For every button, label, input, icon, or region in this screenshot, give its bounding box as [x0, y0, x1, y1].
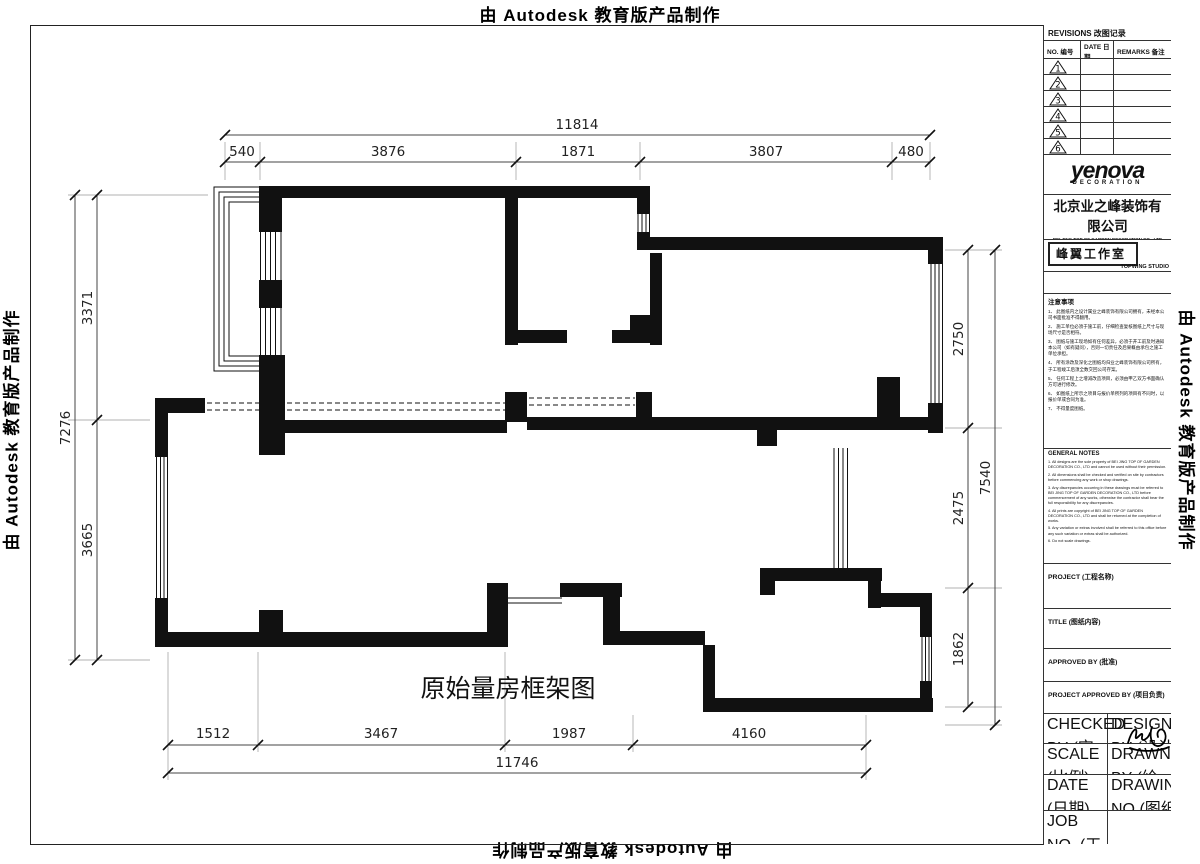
studio-name-en: TOPWING STUDIO [1121, 264, 1169, 270]
revision-row: 2 [1044, 75, 1171, 91]
revision-row: 1 [1044, 59, 1171, 75]
notes-chinese: 注意事项 1、 此图纸内之设计属业之峰装饰有限公司拥有，未经本公司书面批准不得翻… [1044, 294, 1171, 449]
company-info: 北京业之峰装饰有限公司 BEI JING TOP OF GARDEN DECOR… [1044, 195, 1171, 240]
dim-label: 7540 [978, 461, 994, 495]
field-drawing-no: DRAWING NO.(图纸编号) [1108, 775, 1171, 811]
studio-info: 峰翼工作室 TOPWING STUDIO [1044, 240, 1171, 272]
field-project-approved-by: PROJECT APPROVED BY (项目负责) [1044, 682, 1171, 714]
field-title: TITLE (图纸内容) [1044, 609, 1171, 649]
field-date-drawingno: DATE (日期) DRAWING NO.(图纸编号) [1044, 775, 1171, 811]
note-item: 6、 如图纸上所示之项目与报价单所列的项目有不同时，以报价单或合同为准。 [1048, 391, 1167, 403]
revision-row: 4 [1044, 107, 1171, 123]
company-name: 北京业之峰装饰有限公司 [1048, 197, 1167, 237]
dim-label: 3467 [364, 726, 398, 742]
dim-label: 2750 [951, 322, 967, 356]
dim-label: 11814 [556, 117, 599, 133]
revisions-col-no: NO. 编号 [1044, 41, 1081, 59]
logo-subtitle: DECORATION [1048, 180, 1167, 186]
note-item: 2. All dimensions shall be checked and v… [1048, 473, 1167, 483]
dim-label: 1987 [552, 726, 586, 742]
note-item: 6. Do not scale drawings. [1048, 539, 1167, 544]
revision-row: 6 [1044, 139, 1171, 155]
title-block-spacer [1044, 272, 1171, 294]
revisions-header: REVISIONS 改图记录 [1044, 25, 1171, 41]
svg-text:1: 1 [1055, 64, 1060, 74]
dim-label: 3876 [371, 144, 405, 160]
revision-row: 5 [1044, 123, 1171, 139]
designer-signature [1124, 719, 1174, 757]
dim-label: 3371 [80, 291, 96, 325]
revision-triangle-icon: 1 [1049, 60, 1067, 74]
title-block: REVISIONS 改图记录 NO. 编号 DATE 日期 REMARKS 备注… [1043, 25, 1171, 845]
dim-label: 11746 [496, 755, 539, 771]
svg-text:3: 3 [1055, 96, 1060, 106]
field-jobno: JOB NO. (工程编号) [1044, 811, 1171, 844]
svg-text:2: 2 [1055, 80, 1060, 90]
note-item: 5、 任何工程上之增减改造项目，必须由甲乙双方书面确认方可进行修改。 [1048, 376, 1167, 388]
revisions-col-date: DATE 日期 [1081, 41, 1114, 59]
revision-row: 3 [1044, 91, 1171, 107]
svg-text:5: 5 [1055, 128, 1060, 138]
dim-label: 1512 [196, 726, 230, 742]
field-scale: SCALE (比例) [1044, 744, 1108, 775]
general-notes: GENERAL NOTES 1. All designs are the sol… [1044, 449, 1171, 564]
note-item: 4. All prints are copyright of BEI JING … [1048, 509, 1167, 524]
revision-triangle-icon: 5 [1049, 124, 1067, 138]
dim-label: 1871 [561, 144, 595, 160]
floor-plan: 11814 540 3876 1871 3807 480 7276 3371 3… [0, 0, 1200, 864]
dim-label: 7276 [58, 411, 74, 445]
field-checked-by: CHECKED BY (审核) [1044, 714, 1108, 744]
dim-label: 2475 [951, 491, 967, 525]
studio-name: 峰翼工作室 [1048, 242, 1138, 266]
note-item: 1、 此图纸内之设计属业之峰装饰有限公司拥有，未经本公司书面批准不得翻用。 [1048, 309, 1167, 321]
svg-text:6: 6 [1055, 144, 1060, 154]
notes-en-heading: GENERAL NOTES [1048, 451, 1167, 457]
note-item: 1. All designs are the sole property of … [1048, 460, 1167, 470]
svg-text:4: 4 [1055, 112, 1060, 122]
note-item: 4、 所有涂改及深化之图纸均归业之峰装饰有限公司所有，于工程竣工后须全数交回公司… [1048, 360, 1167, 372]
dim-label: 3665 [80, 523, 96, 557]
note-item: 7、 不得量度图纸。 [1048, 406, 1167, 412]
field-date: DATE (日期) [1044, 775, 1108, 811]
revision-triangle-icon: 3 [1049, 92, 1067, 106]
field-project: PROJECT (工程名称) [1044, 564, 1171, 609]
revisions-column-headers: NO. 编号 DATE 日期 REMARKS 备注 [1044, 41, 1171, 59]
note-item: 3. Any discrepancies occurring in these … [1048, 486, 1167, 507]
walls [155, 186, 943, 712]
field-approved-by: APPROVED BY (批准) [1044, 649, 1171, 682]
note-item: 2、 施工单位必须于施工前，仔细检查复核图纸上尺寸与现场尺寸是否相符。 [1048, 324, 1167, 336]
note-item: 3、 图纸与施工现场如有任何差异，必须于开工前及时通知本公司（如有疑问），否则一… [1048, 339, 1167, 357]
revision-triangle-icon: 4 [1049, 108, 1067, 122]
dim-label: 1862 [951, 632, 967, 666]
dimension-labels: 11814 540 3876 1871 3807 480 7276 3371 3… [58, 117, 994, 771]
company-logo: yenova DECORATION [1044, 155, 1171, 195]
drawing-title: 原始量房框架图 [420, 674, 595, 703]
field-job-no: JOB NO. (工程编号) [1044, 811, 1108, 844]
dim-label: 4160 [732, 726, 766, 742]
dim-label: 540 [229, 144, 255, 160]
notes-cn-heading: 注意事项 [1048, 296, 1167, 306]
dim-label: 480 [898, 144, 924, 160]
cad-sheet: 由 Autodesk 教育版产品制作 由 Autodesk 教育版产品制作 由 … [0, 0, 1200, 864]
balcony-window [214, 187, 259, 371]
dim-label: 3807 [749, 144, 783, 160]
note-item: 5. Any variation or extras involved shal… [1048, 526, 1167, 536]
revision-triangle-icon: 6 [1049, 140, 1067, 154]
revisions-col-remarks: REMARKS 备注 [1114, 41, 1171, 59]
revision-triangle-icon: 2 [1049, 76, 1067, 90]
